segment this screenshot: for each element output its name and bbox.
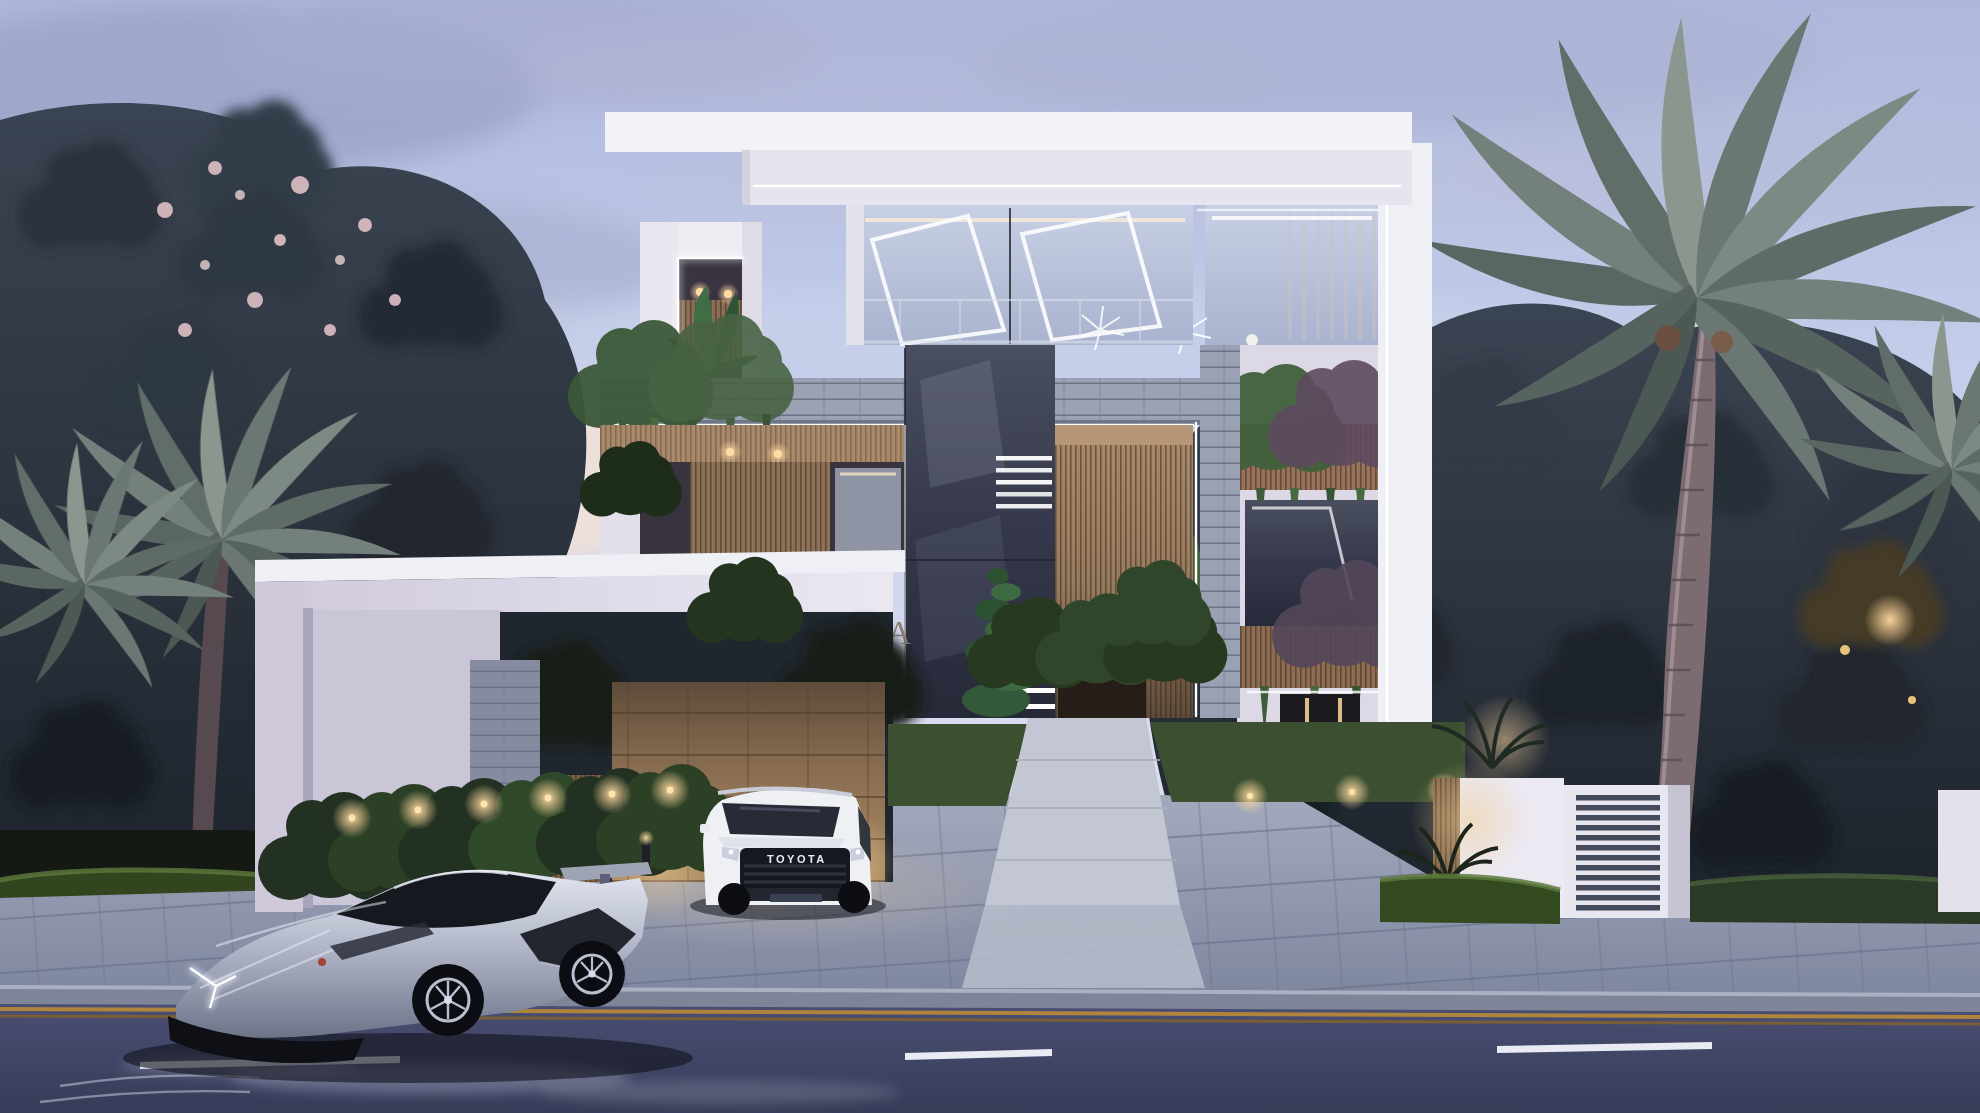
lawn-right <box>1150 722 1465 802</box>
suv-grille: TOYOTA <box>740 848 850 888</box>
lawn-left <box>888 724 1028 806</box>
louver-panel <box>1564 785 1690 918</box>
toyota-badge: TOYOTA <box>767 853 827 865</box>
car-wheel-rear <box>559 941 625 1007</box>
suv-wheel-left <box>718 883 750 915</box>
hedge-far-right <box>1690 876 1980 924</box>
suv: TOYOTA <box>690 788 886 920</box>
top-floor-glass <box>846 205 1193 350</box>
car-emblem <box>318 958 326 966</box>
wide-mullion <box>846 205 864 345</box>
render-canvas: OHANA <box>0 0 1980 1113</box>
suv-wheel-right <box>838 881 870 913</box>
suv-mirror <box>700 824 711 833</box>
architectural-render: OHANA <box>0 0 1980 1113</box>
gate-pillar-far-right <box>1938 790 1980 912</box>
car-wheel-front <box>412 964 484 1036</box>
